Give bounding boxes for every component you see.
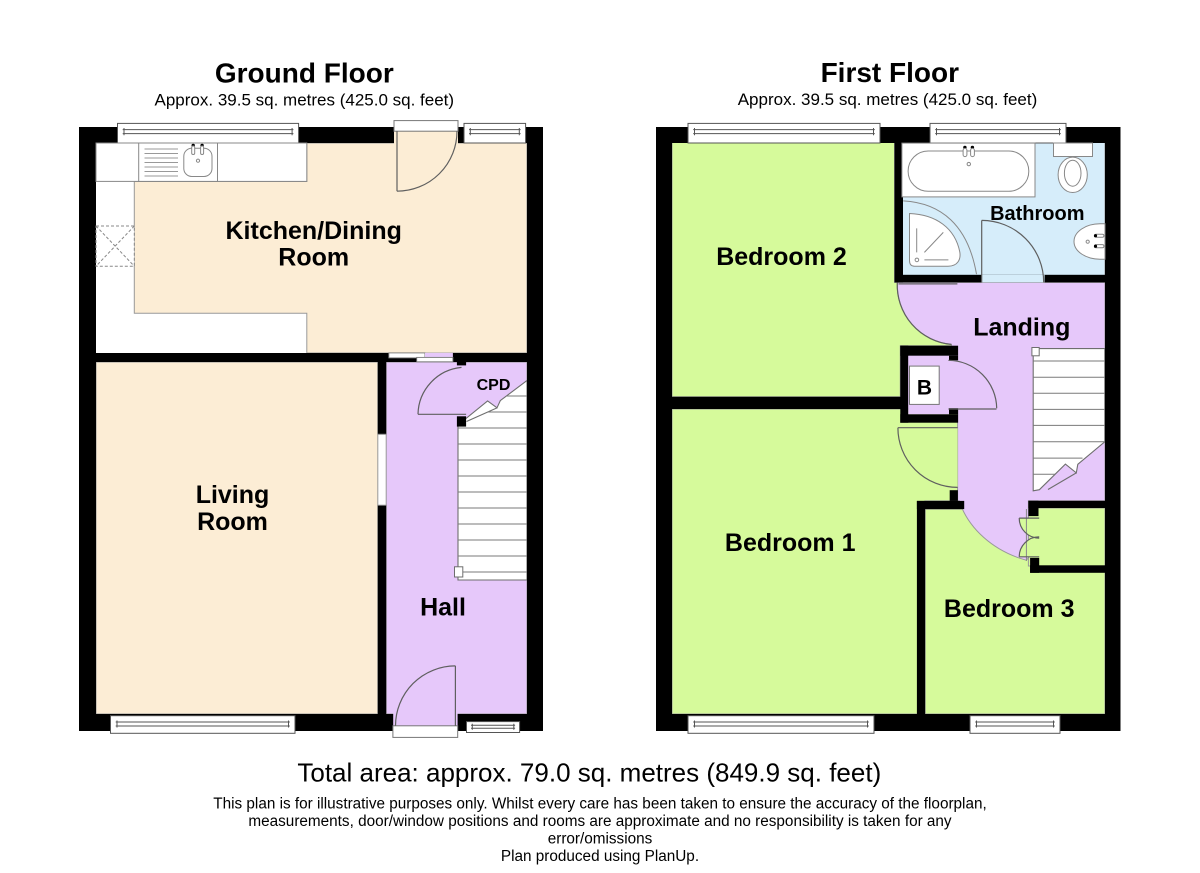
svg-text:error/omissions: error/omissions [548,830,653,847]
svg-text:Bedroom 2: Bedroom 2 [716,243,847,271]
svg-text:Living: Living [196,481,270,509]
svg-text:First Floor: First Floor [821,57,960,88]
svg-text:Approx. 39.5 sq. metres (425.0: Approx. 39.5 sq. metres (425.0 sq. feet) [155,91,455,110]
svg-text:Bedroom 1: Bedroom 1 [725,529,856,557]
svg-text:Bathroom: Bathroom [990,203,1084,225]
svg-text:CPD: CPD [477,377,511,394]
svg-text:Landing: Landing [973,314,1070,342]
svg-text:measurements, door/window posi: measurements, door/window positions and … [248,813,952,830]
svg-text:Approx. 39.5 sq. metres (425.0: Approx. 39.5 sq. metres (425.0 sq. feet) [738,90,1038,109]
svg-text:Room: Room [197,508,268,536]
svg-text:Bedroom 3: Bedroom 3 [944,595,1075,623]
svg-text:B: B [917,377,932,400]
svg-text:Total area: approx. 79.0 sq. m: Total area: approx. 79.0 sq. metres (849… [297,758,881,788]
svg-text:Ground Floor: Ground Floor [215,58,394,89]
svg-text:Room: Room [278,244,349,272]
svg-text:Kitchen/Dining: Kitchen/Dining [226,217,402,245]
svg-text:Plan produced using PlanUp.: Plan produced using PlanUp. [501,848,699,865]
svg-text:This plan is for illustrative: This plan is for illustrative purposes o… [213,795,986,812]
svg-text:Hall: Hall [420,594,466,622]
